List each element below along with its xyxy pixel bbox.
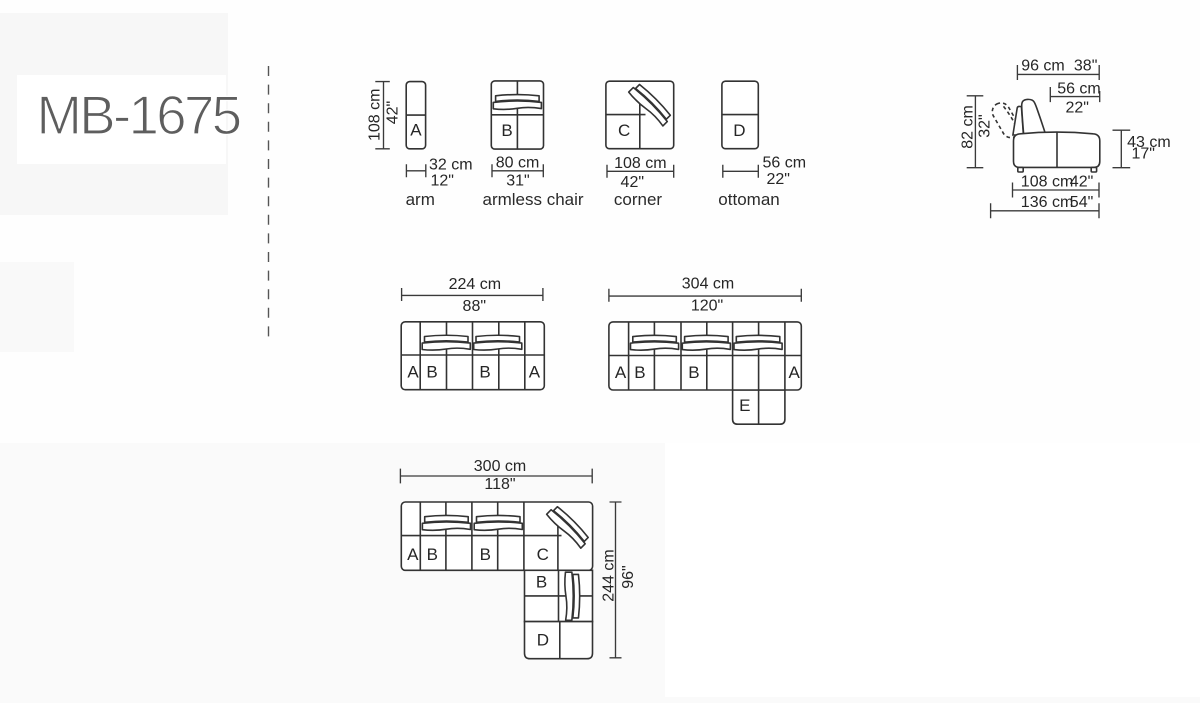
svg-text:12": 12" [431, 172, 454, 189]
svg-text:108 cm: 108 cm [1021, 173, 1073, 190]
svg-text:B: B [634, 363, 645, 382]
svg-text:22": 22" [1066, 99, 1089, 116]
svg-text:56 cm: 56 cm [1057, 80, 1101, 97]
svg-text:22": 22" [767, 171, 790, 188]
svg-text:B: B [688, 363, 699, 382]
svg-text:82 cm: 82 cm [960, 105, 977, 149]
svg-text:ottoman: ottoman [718, 190, 779, 209]
svg-text:224 cm: 224 cm [449, 276, 501, 293]
svg-text:armless chair: armless chair [483, 190, 584, 209]
svg-text:B: B [479, 363, 490, 382]
svg-text:108 cm: 108 cm [614, 155, 666, 172]
svg-text:B: B [480, 545, 491, 564]
svg-text:A: A [410, 121, 422, 140]
svg-text:80 cm: 80 cm [496, 154, 540, 171]
svg-text:56 cm: 56 cm [763, 154, 807, 171]
svg-text:96": 96" [620, 565, 637, 588]
svg-text:54": 54" [1070, 194, 1093, 211]
svg-text:corner: corner [614, 190, 663, 209]
svg-text:118": 118" [484, 476, 515, 493]
svg-text:108 cm: 108 cm [367, 89, 384, 141]
svg-text:B: B [536, 572, 547, 591]
svg-text:42": 42" [385, 101, 402, 124]
svg-text:C: C [618, 121, 630, 140]
svg-text:MB-1675: MB-1675 [37, 85, 241, 146]
svg-text:A: A [407, 545, 419, 564]
svg-text:B: B [427, 545, 438, 564]
svg-text:244 cm: 244 cm [601, 549, 618, 601]
svg-text:88": 88" [463, 298, 486, 315]
svg-text:300 cm: 300 cm [474, 458, 526, 475]
svg-text:32": 32" [977, 114, 994, 137]
svg-text:D: D [733, 121, 745, 140]
svg-text:42": 42" [1070, 173, 1093, 190]
svg-text:42": 42" [621, 174, 644, 191]
svg-text:C: C [537, 545, 549, 564]
svg-text:A: A [789, 363, 801, 382]
svg-text:120": 120" [691, 297, 723, 314]
svg-text:B: B [426, 363, 437, 382]
svg-text:A: A [407, 363, 419, 382]
svg-text:31": 31" [506, 172, 529, 189]
svg-text:A: A [529, 363, 541, 382]
svg-text:A: A [615, 363, 627, 382]
svg-text:arm: arm [406, 190, 435, 209]
svg-text:96 cm: 96 cm [1021, 57, 1065, 74]
svg-text:17": 17" [1132, 146, 1155, 163]
svg-text:38": 38" [1074, 57, 1097, 74]
svg-text:B: B [501, 121, 512, 140]
svg-text:32 cm: 32 cm [429, 156, 473, 173]
svg-text:304 cm: 304 cm [682, 275, 734, 292]
svg-text:D: D [537, 631, 549, 650]
svg-text:136 cm: 136 cm [1021, 194, 1073, 211]
svg-text:E: E [739, 396, 750, 415]
